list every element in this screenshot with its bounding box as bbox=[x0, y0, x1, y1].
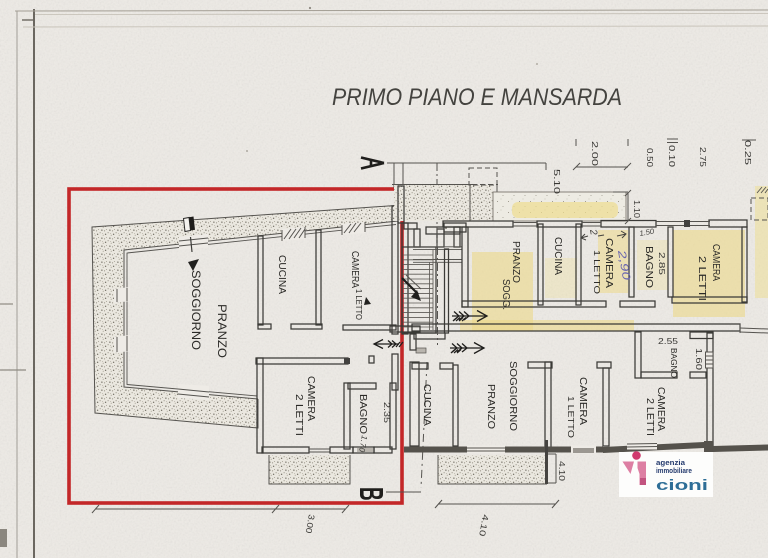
svg-text:1.10: 1.10 bbox=[632, 200, 642, 218]
svg-text:1 LETTO: 1 LETTO bbox=[566, 396, 576, 438]
svg-text:0.50: 0.50 bbox=[645, 148, 655, 167]
svg-text:2.75: 2.75 bbox=[698, 147, 708, 167]
svg-text:2.55: 2.55 bbox=[658, 336, 678, 346]
svg-text:BAGNO: BAGNO bbox=[669, 348, 678, 378]
svg-text:PRANZO: PRANZO bbox=[510, 241, 522, 283]
svg-text:CAMERA: CAMERA bbox=[577, 377, 589, 425]
svg-text:2.35: 2.35 bbox=[382, 402, 392, 423]
svg-text:CAMERA: CAMERA bbox=[349, 251, 361, 288]
svg-text:agenzia: agenzia bbox=[656, 460, 685, 467]
svg-text:2 LETTI: 2 LETTI bbox=[696, 256, 708, 301]
svg-text:CUCINA: CUCINA bbox=[276, 255, 288, 294]
svg-text:SOGGIORNO: SOGGIORNO bbox=[507, 361, 519, 431]
svg-text:5.10: 5.10 bbox=[552, 169, 562, 194]
svg-text:0.10: 0.10 bbox=[667, 145, 677, 167]
svg-text:PRANZO: PRANZO bbox=[215, 304, 227, 358]
svg-text:SOGG.: SOGG. bbox=[500, 279, 512, 310]
svg-text:PRANZO: PRANZO bbox=[485, 384, 497, 429]
svg-text:BAGNO: BAGNO bbox=[357, 394, 369, 434]
svg-text:4.10: 4.10 bbox=[557, 461, 567, 481]
svg-text:BAGNO: BAGNO bbox=[643, 246, 655, 288]
svg-text:2 LETTI: 2 LETTI bbox=[644, 398, 656, 436]
svg-text:CAMERA: CAMERA bbox=[710, 244, 722, 281]
svg-text:2 LETTI: 2 LETTI bbox=[293, 394, 305, 436]
svg-text:1.60: 1.60 bbox=[694, 348, 704, 370]
svg-text:CAMERA: CAMERA bbox=[305, 376, 317, 421]
svg-text:SOGGIORNO: SOGGIORNO bbox=[189, 270, 201, 350]
svg-text:CUCINA: CUCINA bbox=[552, 237, 564, 275]
svg-text:PRIMO PIANO E MANSARDA: PRIMO PIANO E MANSARDA bbox=[332, 84, 622, 111]
svg-text:CAMERA: CAMERA bbox=[603, 238, 615, 288]
svg-text:2.85: 2.85 bbox=[657, 252, 667, 275]
svg-text:B: B bbox=[353, 487, 391, 501]
svg-text:cioni: cioni bbox=[656, 477, 708, 494]
svg-text:2.00: 2.00 bbox=[590, 141, 600, 166]
svg-text:0.25: 0.25 bbox=[743, 140, 753, 165]
svg-text:immobiliare: immobiliare bbox=[656, 468, 692, 475]
svg-text:CUCINA: CUCINA bbox=[421, 384, 433, 426]
svg-text:1 LETTO: 1 LETTO bbox=[592, 250, 602, 294]
svg-text:1 LETTO: 1 LETTO bbox=[354, 289, 364, 320]
